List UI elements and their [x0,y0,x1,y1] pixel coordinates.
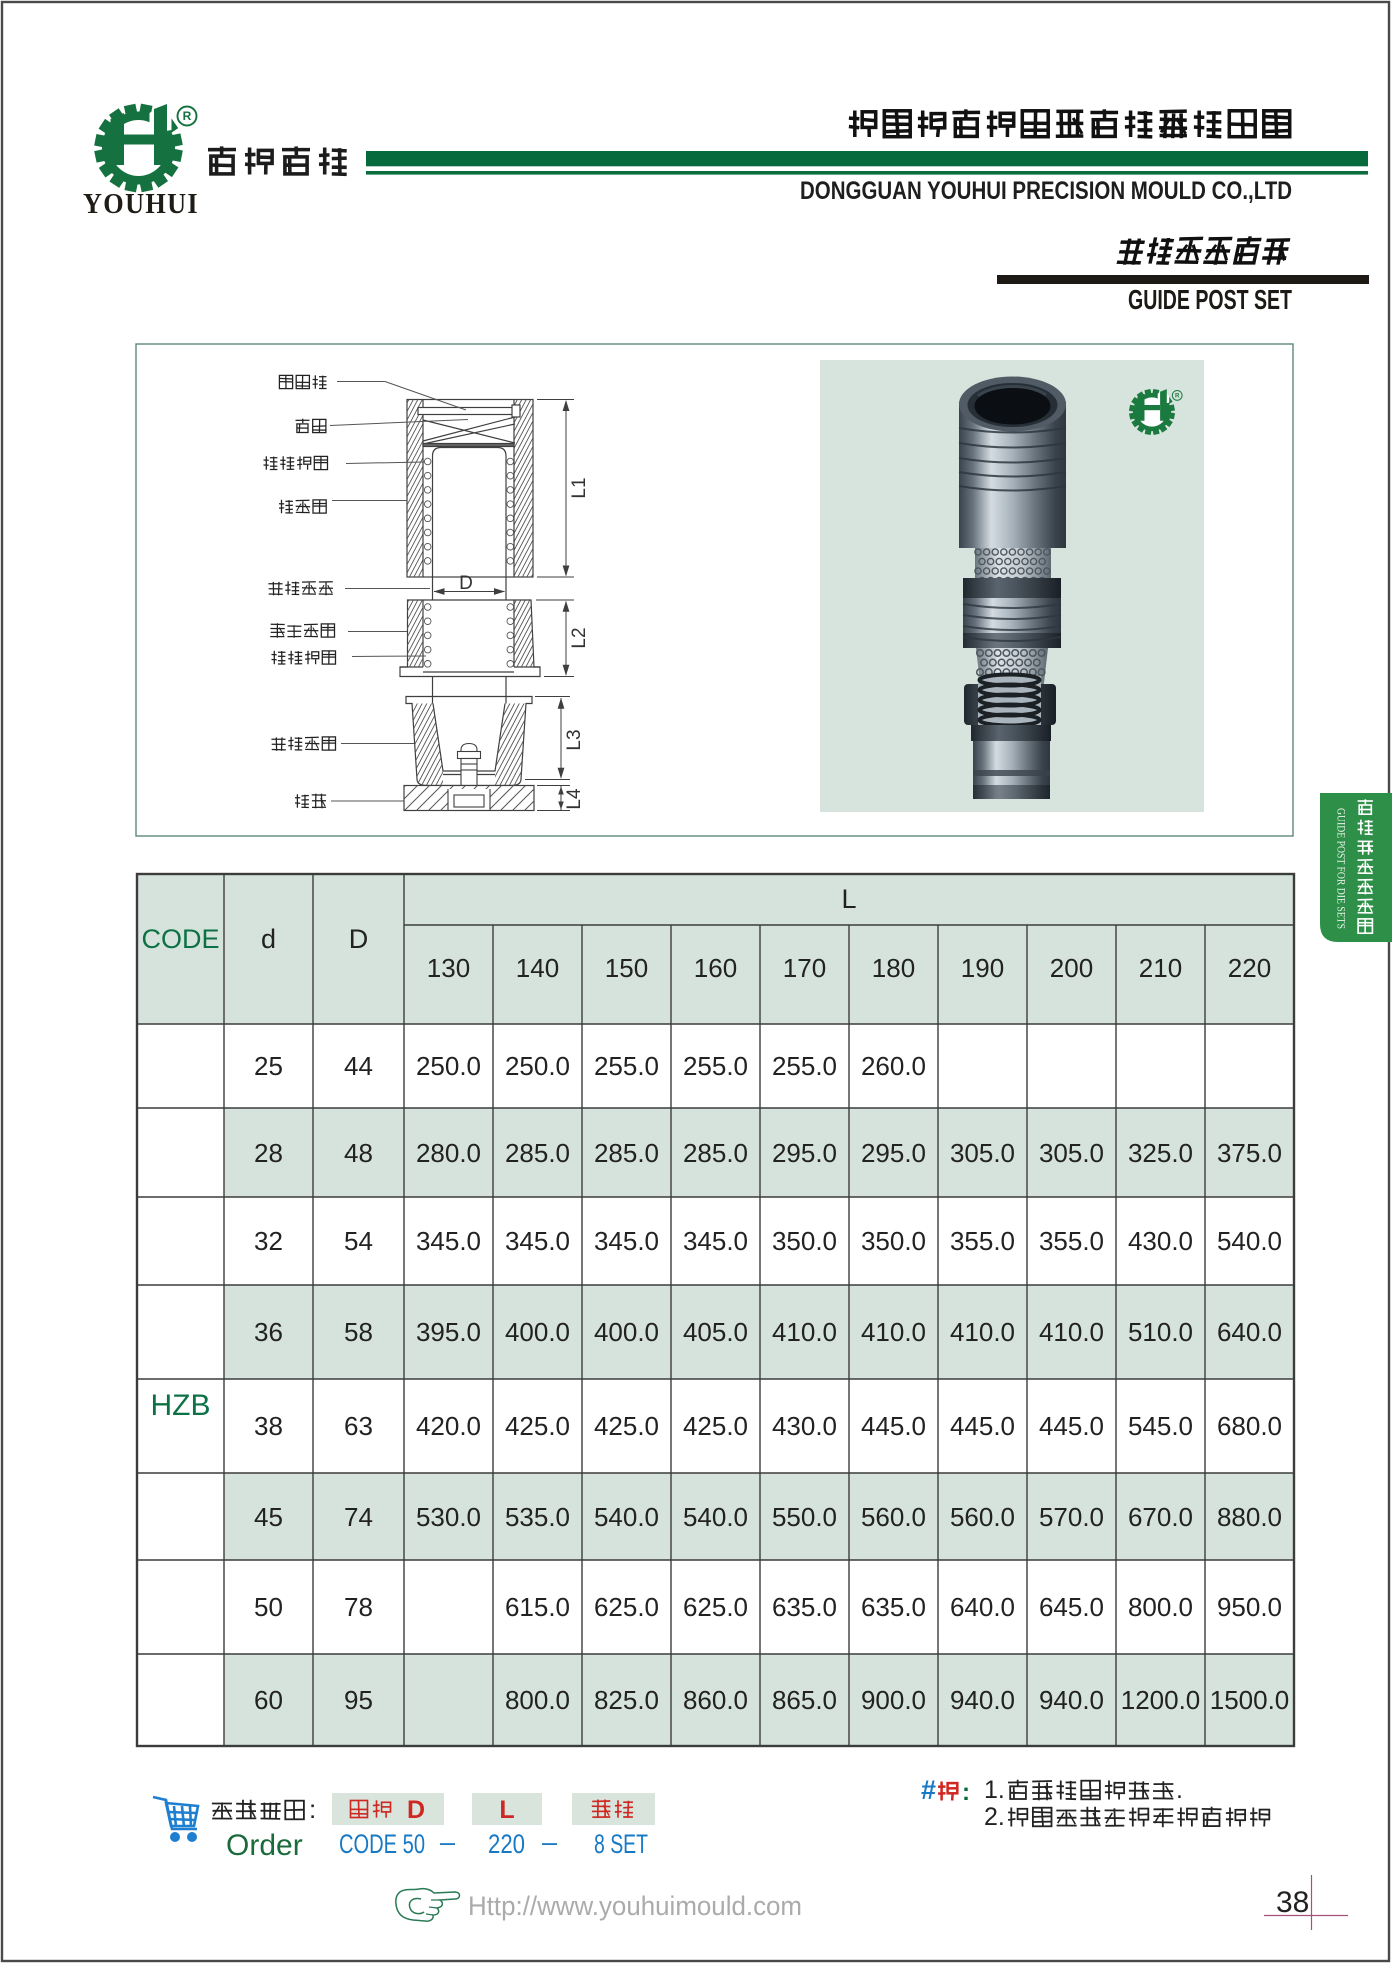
svg-text::: : [309,1794,316,1824]
svg-text:305.0: 305.0 [950,1138,1015,1168]
svg-text:140: 140 [516,953,559,983]
svg-text:58: 58 [344,1317,373,1347]
svg-text:L: L [499,1796,514,1824]
svg-text:510.0: 510.0 [1128,1317,1193,1347]
svg-text::: : [962,1779,970,1806]
svg-text:950.0: 950.0 [1217,1592,1282,1622]
svg-text:880.0: 880.0 [1217,1502,1282,1532]
svg-text:HZB: HZB [151,1389,211,1422]
svg-text:860.0: 860.0 [683,1685,748,1715]
svg-text:540.0: 540.0 [594,1502,659,1532]
svg-text:Order: Order [226,1829,303,1862]
svg-text:2.: 2. [984,1803,1005,1831]
svg-text:250.0: 250.0 [505,1051,570,1081]
svg-text:D: D [459,573,473,594]
svg-text:R: R [1175,393,1180,400]
svg-text:38: 38 [1276,1886,1309,1919]
svg-text:36: 36 [254,1317,283,1347]
svg-text:635.0: 635.0 [772,1592,837,1622]
svg-text:345.0: 345.0 [416,1226,481,1256]
svg-text:25: 25 [254,1051,283,1081]
svg-text:405.0: 405.0 [683,1317,748,1347]
svg-text:130: 130 [427,953,470,983]
svg-text:410.0: 410.0 [772,1317,837,1347]
svg-text:545.0: 545.0 [1128,1411,1193,1441]
svg-text:D: D [407,1796,425,1824]
svg-text:45: 45 [254,1502,283,1532]
svg-text:32: 32 [254,1226,283,1256]
svg-text:530.0: 530.0 [416,1502,481,1532]
svg-text:680.0: 680.0 [1217,1411,1282,1441]
svg-text:615.0: 615.0 [505,1592,570,1622]
svg-text:825.0: 825.0 [594,1685,659,1715]
svg-text:395.0: 395.0 [416,1317,481,1347]
svg-text:570.0: 570.0 [1039,1502,1104,1532]
svg-text:–: – [542,1827,557,1857]
svg-text:63: 63 [344,1411,373,1441]
svg-text:GUIDE POST SET: GUIDE POST SET [1128,284,1292,315]
svg-text:540.0: 540.0 [1217,1226,1282,1256]
svg-text:YOUHUI: YOUHUI [83,188,199,220]
svg-text:670.0: 670.0 [1128,1502,1193,1532]
svg-text:54: 54 [344,1226,373,1256]
svg-text:255.0: 255.0 [683,1051,748,1081]
svg-text:150: 150 [605,953,648,983]
svg-text:CODE: CODE [141,924,219,954]
svg-text:445.0: 445.0 [1039,1411,1104,1441]
svg-text:625.0: 625.0 [594,1592,659,1622]
svg-text:d: d [261,924,276,954]
svg-text:425.0: 425.0 [505,1411,570,1441]
svg-text:375.0: 375.0 [1217,1138,1282,1168]
svg-text:210: 210 [1139,953,1182,983]
svg-text:1200.0: 1200.0 [1121,1685,1201,1715]
svg-text:345.0: 345.0 [594,1226,659,1256]
svg-text:200: 200 [1050,953,1093,983]
svg-text:535.0: 535.0 [505,1502,570,1532]
svg-text:220: 220 [488,1829,525,1859]
svg-text:425.0: 425.0 [683,1411,748,1441]
svg-text:280.0: 280.0 [416,1138,481,1168]
svg-text:28: 28 [254,1138,283,1168]
svg-text:R: R [183,109,192,123]
svg-text:540.0: 540.0 [683,1502,748,1532]
svg-text:350.0: 350.0 [772,1226,837,1256]
svg-text:295.0: 295.0 [772,1138,837,1168]
svg-text:345.0: 345.0 [505,1226,570,1256]
svg-text:940.0: 940.0 [1039,1685,1104,1715]
svg-text:430.0: 430.0 [1128,1226,1193,1256]
svg-text:410.0: 410.0 [950,1317,1015,1347]
svg-text:180: 180 [872,953,915,983]
svg-text:355.0: 355.0 [1039,1226,1104,1256]
svg-text:550.0: 550.0 [772,1502,837,1532]
svg-text:445.0: 445.0 [950,1411,1015,1441]
svg-text:355.0: 355.0 [950,1226,1015,1256]
svg-text:.: . [1176,1776,1183,1804]
svg-text:400.0: 400.0 [594,1317,659,1347]
svg-text:865.0: 865.0 [772,1685,837,1715]
svg-text:160: 160 [694,953,737,983]
svg-text:L2: L2 [569,627,590,648]
svg-text:44: 44 [344,1051,373,1081]
svg-text:Http://www.youhuimould.com: Http://www.youhuimould.com [468,1891,802,1921]
svg-text:1500.0: 1500.0 [1210,1685,1290,1715]
svg-text:560.0: 560.0 [950,1502,1015,1532]
svg-text:255.0: 255.0 [594,1051,659,1081]
svg-text:48: 48 [344,1138,373,1168]
svg-text:CODE 50: CODE 50 [339,1829,425,1859]
svg-text:78: 78 [344,1592,373,1622]
svg-text:D: D [349,924,369,954]
svg-text:38: 38 [254,1411,283,1441]
svg-text:640.0: 640.0 [950,1592,1015,1622]
svg-text:L1: L1 [569,477,590,498]
svg-text:625.0: 625.0 [683,1592,748,1622]
svg-text:GUIDE POST FOR DIE SETS: GUIDE POST FOR DIE SETS [1335,808,1347,929]
svg-text:285.0: 285.0 [683,1138,748,1168]
svg-text:285.0: 285.0 [594,1138,659,1168]
svg-text:DONGGUAN YOUHUI PRECISION MOUL: DONGGUAN YOUHUI PRECISION MOULD CO.,LTD [800,177,1292,205]
svg-text:400.0: 400.0 [505,1317,570,1347]
svg-text:255.0: 255.0 [772,1051,837,1081]
svg-text:260.0: 260.0 [861,1051,926,1081]
svg-text:95: 95 [344,1685,373,1715]
svg-text:L3: L3 [564,729,585,750]
svg-text:50: 50 [254,1592,283,1622]
svg-text:L: L [841,884,856,914]
svg-text:800.0: 800.0 [505,1685,570,1715]
svg-text:220: 220 [1228,953,1271,983]
svg-text:250.0: 250.0 [416,1051,481,1081]
svg-text:285.0: 285.0 [505,1138,570,1168]
svg-text:190: 190 [961,953,1004,983]
svg-text:–: – [440,1827,455,1857]
svg-text:645.0: 645.0 [1039,1592,1104,1622]
svg-text:640.0: 640.0 [1217,1317,1282,1347]
svg-text:900.0: 900.0 [861,1685,926,1715]
svg-text:8 SET: 8 SET [594,1829,648,1859]
svg-text:325.0: 325.0 [1128,1138,1193,1168]
svg-text:940.0: 940.0 [950,1685,1015,1715]
svg-text:1.: 1. [984,1776,1005,1804]
svg-text:60: 60 [254,1685,283,1715]
svg-text:420.0: 420.0 [416,1411,481,1441]
svg-text:410.0: 410.0 [1039,1317,1104,1347]
svg-text:410.0: 410.0 [861,1317,926,1347]
svg-text:560.0: 560.0 [861,1502,926,1532]
svg-text:350.0: 350.0 [861,1226,926,1256]
svg-text:800.0: 800.0 [1128,1592,1193,1622]
svg-text:445.0: 445.0 [861,1411,926,1441]
svg-text:425.0: 425.0 [594,1411,659,1441]
svg-text:#: # [921,1775,936,1805]
svg-text:430.0: 430.0 [772,1411,837,1441]
svg-text:345.0: 345.0 [683,1226,748,1256]
svg-text:295.0: 295.0 [861,1138,926,1168]
svg-text:L4: L4 [564,788,585,810]
svg-text:170: 170 [783,953,826,983]
svg-text:74: 74 [344,1502,373,1532]
svg-text:635.0: 635.0 [861,1592,926,1622]
svg-text:305.0: 305.0 [1039,1138,1104,1168]
